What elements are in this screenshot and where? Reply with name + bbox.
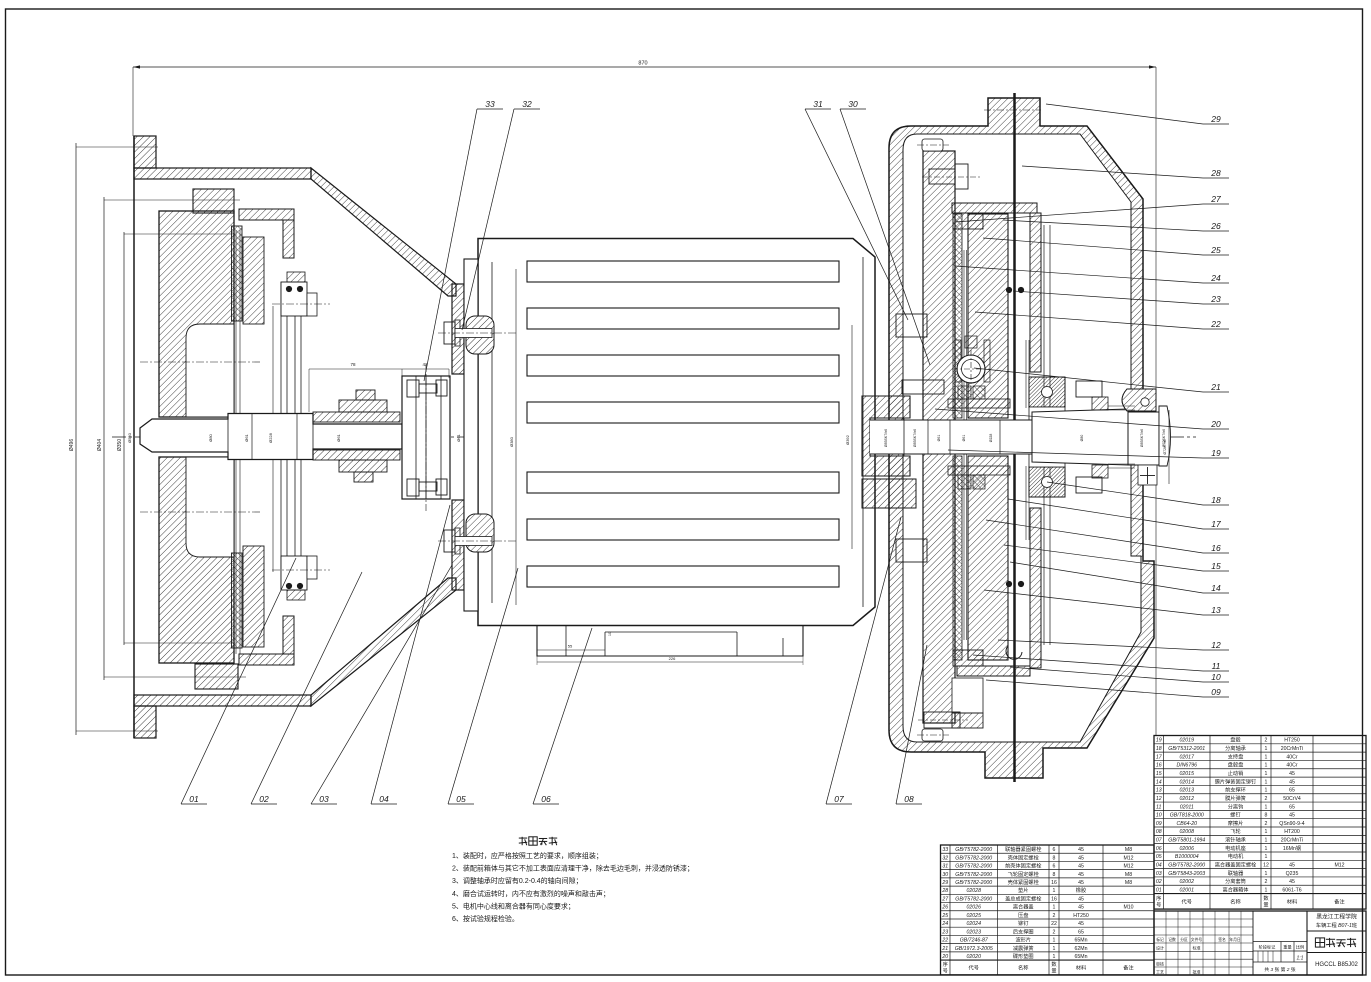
svg-text:黑龙江工程学院: 黑龙江工程学院 [1316,913,1357,921]
svg-text:1:1: 1:1 [1297,956,1304,962]
svg-text:07: 07 [834,794,844,804]
svg-text:减震弹簧: 减震弹簧 [1013,944,1034,952]
svg-text:20CrMnTi: 20CrMnTi [1281,746,1304,752]
svg-text:Ø228: Ø228 [268,432,273,443]
svg-text:02024: 02024 [967,921,982,927]
svg-text:16: 16 [1211,543,1221,553]
svg-text:GB/T818-2000: GB/T818-2000 [1170,813,1204,819]
svg-text:15: 15 [1211,561,1221,571]
svg-text:1: 1 [1265,887,1268,893]
svg-text:代号: 代号 [1182,897,1192,905]
svg-text:QSn90-9-4: QSn90-9-4 [1279,821,1304,827]
svg-text:分区: 分区 [1180,937,1188,942]
svg-text:审核: 审核 [1156,961,1164,967]
svg-text:40Cr: 40Cr [1286,754,1298,760]
svg-text:1: 1 [1053,938,1056,944]
svg-text:年月日: 年月日 [1229,937,1241,942]
svg-text:45: 45 [1078,905,1084,911]
svg-text:后支撑圈: 后支撑圈 [1013,927,1034,935]
svg-text:02: 02 [1156,879,1162,885]
svg-text:摩擦片: 摩擦片 [1228,819,1244,827]
svg-text:设计: 设计 [1156,945,1164,951]
svg-text:Ø404: Ø404 [97,439,103,451]
svg-text:GB/T5801-1994: GB/T5801-1994 [1168,838,1205,844]
svg-text:02008: 02008 [1180,829,1195,835]
svg-text:2: 2 [1053,913,1056,919]
svg-text:滚针轴承: 滚针轴承 [1225,836,1247,844]
svg-text:02011: 02011 [1180,804,1194,810]
svg-text:20: 20 [1210,419,1221,429]
svg-text:14: 14 [1211,583,1221,593]
svg-text:壳体固定螺栓: 壳体固定螺栓 [1008,853,1040,861]
svg-text:壳体紧固螺栓: 壳体紧固螺栓 [1008,878,1040,886]
svg-text:Ø80: Ø80 [208,433,213,441]
svg-text:Ø61: Ø61 [937,435,941,442]
svg-text:铆钉: 铆钉 [1018,919,1028,927]
svg-text:分离套筒: 分离套筒 [1225,877,1246,885]
svg-text:前壳体固定螺栓: 前壳体固定螺栓 [1005,862,1042,870]
svg-text:3、调整轴承时应留有0.2-0.4的轴向间隙；: 3、调整轴承时应留有0.2-0.4的轴向间隙； [452,876,583,885]
svg-text:CB64-20: CB64-20 [1177,821,1198,827]
svg-text:6: 6 [1053,847,1056,853]
svg-text:Ø392: Ø392 [845,434,850,445]
svg-text:2: 2 [1265,821,1268,827]
svg-text:电动机: 电动机 [1228,852,1244,860]
svg-text:M8: M8 [1125,880,1132,886]
svg-text:33: 33 [485,99,495,109]
svg-text:序: 序 [943,960,948,968]
svg-text:16: 16 [1051,880,1057,886]
svg-text:膜片弹簧: 膜片弹簧 [1225,794,1246,802]
svg-text:28: 28 [1210,168,1221,178]
svg-text:11: 11 [1156,804,1161,810]
svg-text:批准: 批准 [1193,969,1201,975]
svg-text:04: 04 [379,794,389,804]
svg-text:02020: 02020 [967,954,982,960]
svg-text:共 3 张 第 2 张: 共 3 张 第 2 张 [1264,966,1295,973]
svg-text:1: 1 [1265,838,1268,844]
svg-text:HT250: HT250 [1284,738,1300,744]
svg-text:45: 45 [1289,863,1295,869]
svg-text:24: 24 [1210,273,1221,283]
svg-text:数: 数 [1051,960,1057,968]
svg-text:14: 14 [1156,779,1162,785]
svg-text:GB/7246-87: GB/7246-87 [960,938,989,944]
svg-text:2、装配前箱体与其它不加工表面应清理干净，除去毛边毛刺，并浸: 2、装配前箱体与其它不加工表面应清理干净，除去毛边毛刺，并浸透防锈漆； [452,864,694,873]
svg-text:Ø85SK7/h6: Ø85SK7/h6 [1140,429,1144,447]
svg-text:重量: 重量 [1283,944,1291,951]
svg-text:12: 12 [1211,640,1221,650]
svg-text:M8: M8 [1125,847,1132,853]
svg-text:03: 03 [1156,871,1162,877]
svg-text:6061-T6: 6061-T6 [1282,887,1301,893]
svg-text:止动销: 止动销 [1228,769,1244,777]
svg-text:Q235: Q235 [1286,871,1299,877]
svg-text:8: 8 [1265,813,1268,819]
svg-text:26: 26 [1210,221,1221,231]
svg-text:签名: 签名 [1218,937,1226,942]
svg-text:05: 05 [1156,854,1162,860]
svg-text:16: 16 [1051,896,1057,902]
svg-text:M8: M8 [1125,872,1132,878]
svg-text:1: 1 [1265,754,1268,760]
svg-text:25: 25 [1210,245,1221,255]
svg-text:GB/T5312-2001: GB/T5312-2001 [1168,746,1205,752]
svg-text:02023: 02023 [967,929,982,935]
svg-text:量: 量 [1263,902,1268,909]
svg-text:GB/T5782-2000: GB/T5782-2000 [955,872,992,878]
svg-text:02014: 02014 [1180,779,1195,785]
svg-text:螺钉: 螺钉 [1230,811,1240,819]
svg-text:Ø496: Ø496 [69,439,75,451]
svg-text:1: 1 [1265,746,1268,752]
svg-text:序: 序 [1156,894,1161,902]
svg-text:分离轴承: 分离轴承 [1225,744,1247,752]
svg-text:02: 02 [259,794,269,804]
svg-text:6: 6 [1053,864,1056,870]
svg-text:盘毂盘: 盘毂盘 [1228,761,1244,769]
svg-text:2: 2 [1265,796,1268,802]
svg-text:1: 1 [1265,854,1268,860]
svg-text:代号: 代号 [969,963,979,971]
svg-text:GB/T5782-2000: GB/T5782-2000 [955,864,992,870]
svg-text:19: 19 [1211,448,1221,458]
svg-text:Ø350: Ø350 [117,439,123,451]
svg-text:离合器箱体: 离合器箱体 [1223,885,1250,893]
svg-text:1: 1 [1265,779,1268,785]
svg-text:橡胶: 橡胶 [1076,886,1086,894]
svg-text:11: 11 [1212,661,1221,671]
svg-text:备注: 备注 [1334,897,1344,905]
svg-text:波形片: 波形片 [1015,936,1031,944]
svg-text:飞轮固定螺栓: 飞轮固定螺栓 [1008,870,1040,878]
svg-text:16Mn钢: 16Mn钢 [1283,844,1301,852]
svg-text:65Mn: 65Mn [1075,938,1088,944]
svg-text:HGCCL B85J02: HGCCL B85J02 [1315,962,1358,968]
svg-text:2: 2 [1265,879,1268,885]
svg-text:33: 33 [942,847,948,853]
svg-text:Ø85SK7/h6: Ø85SK7/h6 [884,429,888,447]
svg-text:文件号: 文件号 [1191,937,1203,942]
svg-text:1: 1 [1265,846,1268,852]
svg-text:量: 量 [1051,967,1056,974]
svg-text:15: 15 [1156,771,1162,777]
svg-text:盘毂: 盘毂 [1230,736,1240,744]
svg-text:45: 45 [1289,813,1295,819]
svg-text:前支撑环: 前支撑环 [1225,786,1246,794]
svg-text:01: 01 [189,794,199,804]
svg-text:02026: 02026 [967,905,982,911]
svg-text:5、电机中心线和离合器有同心度要求；: 5、电机中心线和离合器有同心度要求； [452,901,575,910]
svg-text:标准: 标准 [1193,945,1201,951]
svg-text:22: 22 [941,938,948,944]
svg-text:Ø85SK7/h6: Ø85SK7/h6 [913,429,917,447]
svg-text:1: 1 [1265,871,1268,877]
svg-text:1: 1 [1265,763,1268,769]
svg-text:1: 1 [1053,954,1056,960]
svg-text:HT200: HT200 [1284,829,1300,835]
svg-text:材料: 材料 [1287,897,1297,905]
svg-text:号: 号 [943,967,948,974]
svg-text:02015: 02015 [1180,771,1195,777]
svg-text:号: 号 [1156,902,1161,909]
svg-text:18: 18 [1211,495,1221,505]
svg-text:GB/T5843-2003: GB/T5843-2003 [1168,871,1205,877]
svg-text:45: 45 [1078,864,1084,870]
svg-text:Ø80: Ø80 [1080,435,1084,442]
svg-text:Ø380: Ø380 [509,436,514,447]
svg-text:226: 226 [669,656,676,661]
svg-text:27: 27 [1210,194,1221,204]
svg-text:25: 25 [941,913,948,919]
svg-text:02012: 02012 [1180,796,1195,802]
svg-text:4、磨合试运转时，内不应有激烈的噪声和敲击声；: 4、磨合试运转时，内不应有激烈的噪声和敲击声； [452,889,610,898]
svg-text:1: 1 [1265,829,1268,835]
svg-text:02017: 02017 [1180,754,1196,760]
svg-text:碟形垫圈: 碟形垫圈 [1013,952,1034,960]
svg-text:02025: 02025 [967,913,982,919]
svg-text:02019: 02019 [1180,738,1195,744]
svg-text:比例: 比例 [1296,944,1304,951]
svg-text:2: 2 [1265,738,1268,744]
svg-text:13: 13 [1211,605,1221,615]
svg-text:GB/T5782-2000: GB/T5782-2000 [955,847,992,853]
svg-text:17: 17 [1211,519,1221,529]
svg-text:02013: 02013 [1180,788,1195,794]
svg-text:数: 数 [1263,894,1269,902]
svg-text:30: 30 [848,99,858,109]
svg-text:2: 2 [1053,929,1056,935]
svg-text:20: 20 [941,954,948,960]
svg-text:Ø228: Ø228 [989,434,993,443]
svg-text:31: 31 [942,864,948,870]
svg-text:1: 1 [1053,946,1056,952]
svg-text:M12: M12 [1123,855,1133,861]
svg-text:M12: M12 [1123,864,1133,870]
svg-text:32: 32 [942,855,948,861]
svg-text:45: 45 [1289,771,1295,777]
svg-text:Ø61: Ø61 [336,433,341,441]
svg-text:GB/T5782-2000: GB/T5782-2000 [1168,863,1205,869]
svg-text:盖总成固定螺栓: 盖总成固定螺栓 [1005,894,1042,902]
svg-text:18: 18 [1156,746,1162,752]
svg-text:21: 21 [941,946,948,952]
svg-text:78: 78 [350,362,356,367]
svg-text:10: 10 [608,632,612,636]
svg-text:备注: 备注 [1123,963,1133,971]
svg-text:45: 45 [1078,872,1084,878]
svg-text:20CrMnTi: 20CrMnTi [1281,838,1304,844]
svg-text:材料: 材料 [1076,963,1086,971]
svg-text:65Mn: 65Mn [1075,954,1088,960]
svg-text:膜片弹簧固定铆钉: 膜片弹簧固定铆钉 [1215,777,1257,785]
svg-text:50CrV4: 50CrV4 [1283,796,1301,802]
svg-text:01: 01 [1156,887,1162,893]
svg-text:8: 8 [1053,872,1056,878]
svg-text:GB/T5782-2000: GB/T5782-2000 [955,880,992,886]
svg-text:13: 13 [1156,788,1162,794]
svg-text:09: 09 [1211,687,1221,697]
svg-text:65: 65 [1289,804,1295,810]
svg-text:分离钩: 分离钩 [1228,802,1244,810]
svg-text:M12: M12 [1334,863,1344,869]
svg-text:45: 45 [1289,879,1295,885]
svg-text:B1000004: B1000004 [1175,854,1199,860]
svg-text:1、装配时，应严格按照工艺的要求，顺序组装；: 1、装配时，应严格按照工艺的要求，顺序组装； [452,851,603,860]
svg-text:23: 23 [1210,294,1221,304]
svg-text:19: 19 [1156,738,1162,744]
svg-text:飞轮: 飞轮 [1230,827,1240,835]
svg-text:名称: 名称 [1230,897,1240,905]
svg-text:M10: M10 [1123,905,1133,911]
svg-text:16: 16 [1156,763,1162,769]
svg-text:工艺: 工艺 [1156,970,1164,975]
svg-text:04: 04 [1156,863,1162,869]
svg-text:1: 1 [1053,905,1056,911]
svg-text:65: 65 [1078,929,1084,935]
svg-text:Ø61: Ø61 [456,433,461,441]
svg-text:Ø72SK7/h6: Ø72SK7/h6 [1162,429,1166,447]
svg-text:24: 24 [941,921,948,927]
svg-text:08: 08 [1156,829,1162,835]
svg-text:联轴器: 联轴器 [1228,869,1244,877]
svg-text:06: 06 [541,794,551,804]
svg-text:21: 21 [1210,382,1221,392]
svg-text:8: 8 [1053,855,1056,861]
svg-text:联轴器紧固螺栓: 联轴器紧固螺栓 [1005,845,1042,853]
svg-text:08: 08 [904,794,914,804]
svg-text:02028: 02028 [967,888,982,894]
svg-text:1: 1 [1265,804,1268,810]
svg-text:Ø550: Ø550 [127,432,132,443]
svg-text:22: 22 [1210,319,1221,329]
svg-text:GB/T5782-2000: GB/T5782-2000 [955,855,992,861]
svg-text:23: 23 [941,929,948,935]
svg-text:标记: 标记 [1156,937,1164,942]
svg-text:GB/T5782-2000: GB/T5782-2000 [955,896,992,902]
svg-text:65: 65 [1289,788,1295,794]
svg-text:02002: 02002 [1180,879,1195,885]
svg-text:22: 22 [1051,921,1057,927]
svg-text:10: 10 [1211,672,1221,682]
svg-text:GB/1972.3-2005: GB/1972.3-2005 [955,946,993,952]
svg-text:05: 05 [456,794,466,804]
svg-text:06: 06 [1156,846,1162,852]
svg-text:45: 45 [1289,779,1295,785]
svg-text:HT250: HT250 [1073,913,1089,919]
svg-text:45: 45 [1078,880,1084,886]
svg-text:29: 29 [1210,114,1221,124]
svg-text:离合器盖: 离合器盖 [1013,903,1034,911]
svg-text:Ø61: Ø61 [244,433,249,441]
svg-text:6、按试验规程检验。: 6、按试验规程检验。 [452,914,519,923]
svg-text:55: 55 [568,644,573,649]
svg-text:记数: 记数 [1168,937,1176,942]
svg-text:62Mn: 62Mn [1075,946,1088,952]
svg-text:名称: 名称 [1018,963,1028,971]
svg-text:03: 03 [319,794,329,804]
svg-text:28: 28 [941,888,948,894]
svg-text:垫片: 垫片 [1018,886,1028,894]
svg-text:31: 31 [813,99,823,109]
svg-text:支持盘: 支持盘 [1228,752,1244,760]
svg-text:1: 1 [1053,888,1056,894]
svg-text:02001: 02001 [1180,887,1195,893]
svg-text:02006: 02006 [1180,846,1195,852]
svg-text:Ø61: Ø61 [962,435,966,442]
svg-text:26: 26 [941,905,948,911]
svg-text:40Cr: 40Cr [1286,763,1298,769]
svg-text:09: 09 [1156,821,1162,827]
svg-text:10: 10 [1156,813,1162,819]
svg-text:离合器盖固定螺栓: 离合器盖固定螺栓 [1215,861,1257,869]
svg-text:29: 29 [941,880,948,886]
svg-text:1: 1 [1265,788,1268,794]
svg-text:45: 45 [1078,847,1084,853]
svg-text:压盘: 压盘 [1018,911,1028,919]
svg-text:45: 45 [1078,855,1084,861]
svg-text:45: 45 [1078,921,1084,927]
svg-text:电动机座: 电动机座 [1225,844,1246,852]
svg-text:阶段标记: 阶段标记 [1259,944,1277,951]
svg-text:27: 27 [941,896,949,902]
svg-text:870: 870 [638,61,647,67]
svg-text:45: 45 [1078,896,1084,902]
svg-text:车辆工程 B07-1班: 车辆工程 B07-1班 [1316,921,1357,929]
svg-text:12: 12 [1156,796,1162,802]
svg-text:1: 1 [1265,771,1268,777]
svg-text:DIN6796: DIN6796 [1177,763,1198,769]
svg-text:12: 12 [1263,863,1269,869]
svg-text:30: 30 [942,872,948,878]
svg-text:32: 32 [522,99,532,109]
